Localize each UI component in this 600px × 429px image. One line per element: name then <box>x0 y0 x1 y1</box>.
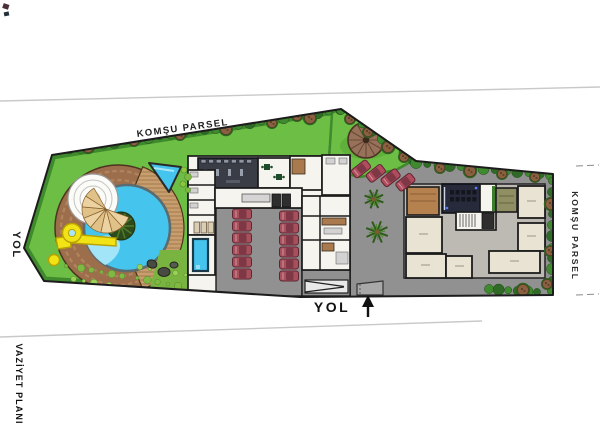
apartment-room <box>489 251 540 273</box>
apartment-room <box>446 256 472 278</box>
car <box>233 209 252 219</box>
site-plan-drawing: KOMŞU PARSEL KOMŞU PARSEL YOL YOL VAZİYE… <box>0 0 600 429</box>
massage-bed <box>292 159 305 174</box>
lower-road-edge-line <box>0 321 482 337</box>
sun-loungers <box>194 222 214 233</box>
boundary-dash-top-right <box>576 165 599 166</box>
corner-artifact <box>2 3 9 16</box>
car <box>280 211 299 221</box>
reception-desk <box>242 194 270 202</box>
elevator <box>272 194 281 207</box>
car <box>233 269 252 279</box>
car <box>280 247 299 257</box>
car <box>280 235 299 245</box>
car <box>233 257 252 267</box>
apartment-room <box>518 223 545 251</box>
apartment-room <box>518 186 545 218</box>
stair-elevator-core <box>456 212 496 230</box>
apartment-building <box>404 184 545 278</box>
indoor-pool <box>193 239 208 271</box>
label-vaziyet-plani: VAZİYET PLANI <box>14 343 24 424</box>
label-yol-left: YOL <box>10 231 22 258</box>
north-arrow <box>362 295 374 317</box>
lounge-room <box>258 158 290 188</box>
car <box>233 245 252 255</box>
clubhouse-building <box>188 155 350 296</box>
car <box>233 221 252 231</box>
entrance-ramp <box>357 281 383 295</box>
apartment-room <box>406 254 446 278</box>
garage-ramp <box>305 280 348 293</box>
car <box>233 233 252 243</box>
elevator <box>282 194 291 207</box>
apartment-room <box>406 217 442 253</box>
car <box>280 259 299 269</box>
site-plan-canvas: KOMŞU PARSEL KOMŞU PARSEL YOL YOL VAZİYE… <box>0 0 600 429</box>
terrace-lounge <box>496 188 517 212</box>
car <box>280 271 299 281</box>
parcel <box>24 105 587 297</box>
upper-road-edge-line <box>0 87 600 101</box>
boundary-dash-bottom-right <box>576 294 599 295</box>
label-komsu-parsel-right: KOMŞU PARSEL <box>570 191 580 280</box>
car <box>280 223 299 233</box>
label-yol-bottom: YOL <box>314 299 350 315</box>
